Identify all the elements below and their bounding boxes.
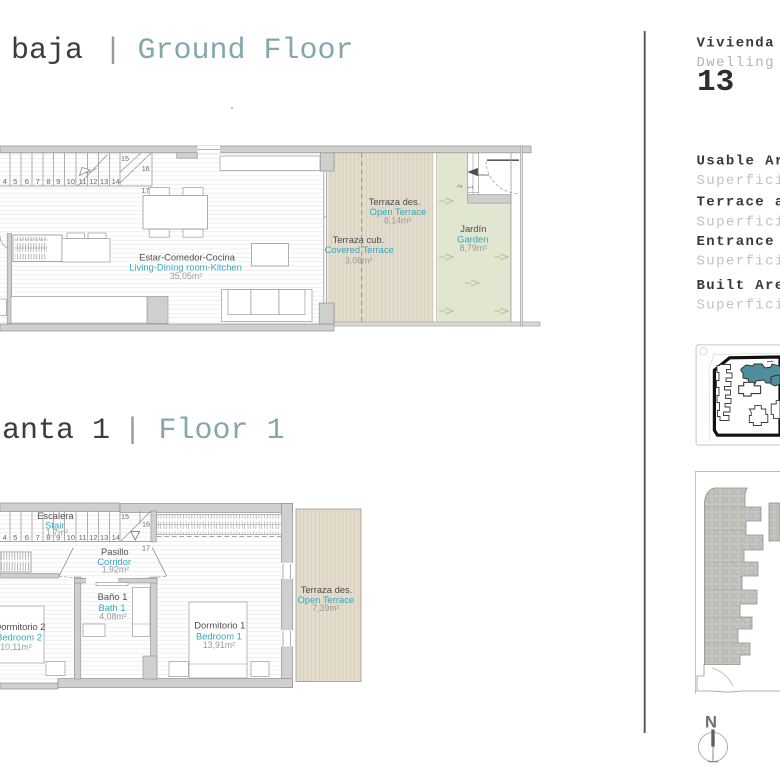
svg-text:Covered Terrace: Covered Terrace [325,244,394,255]
svg-text:11: 11 [79,533,87,542]
svg-text:17: 17 [142,186,150,195]
svg-text:Dormitorio 2: Dormitorio 2 [0,621,46,632]
svg-text:9: 9 [56,177,60,186]
svg-text:anta 1: anta 1 [2,414,110,448]
svg-text:12: 12 [89,177,97,186]
svg-text:10: 10 [67,177,75,186]
svg-text:Superficie terraza: Superficie terraza [697,215,780,231]
svg-text:2: 2 [457,184,464,188]
svg-text:N: N [705,714,717,732]
svg-text:Ground Floor: Ground Floor [138,34,354,68]
svg-text:7: 7 [36,533,40,542]
svg-text:6: 6 [25,177,29,186]
svg-text:Terrace area: Terrace area [697,195,780,211]
svg-text:8,14m²: 8,14m² [384,215,411,225]
svg-text:16: 16 [142,164,150,173]
svg-text:16: 16 [142,520,150,529]
svg-text:7,39m²: 7,39m² [312,603,339,613]
svg-text:|: | [124,414,142,448]
svg-text:35,05m²: 35,05m² [170,271,202,281]
svg-text:5: 5 [13,533,17,542]
svg-text:4,08m²: 4,08m² [99,611,126,621]
svg-text:15: 15 [121,512,129,521]
svg-text:Floor 1: Floor 1 [159,414,285,448]
svg-text:7: 7 [36,177,40,186]
svg-text:Superficie útil: Superficie útil [697,173,780,189]
svg-text:5: 5 [13,177,17,186]
svg-text:Terraza cub.: Terraza cub. [333,234,385,245]
svg-text:13,91m²: 13,91m² [203,640,235,650]
svg-text:baja: baja [11,34,83,68]
svg-text:6: 6 [25,533,29,542]
svg-text:Superficie construida: Superficie construida [697,298,780,314]
svg-text:Dormitorio 1: Dormitorio 1 [194,619,245,630]
svg-text:14: 14 [112,533,120,542]
svg-text:3,08m²: 3,08m² [345,255,372,265]
svg-text:Entrance: Entrance [697,234,775,250]
svg-text:1: 1 [468,185,475,189]
svg-text:Bedroom 2: Bedroom 2 [0,631,42,642]
svg-text:Usable Area: Usable Area [697,154,780,170]
svg-text:13: 13 [697,65,734,100]
svg-text:15: 15 [121,154,129,163]
svg-text:Baño 1: Baño 1 [98,591,128,602]
svg-text:1,92m²: 1,92m² [102,564,129,574]
svg-text:8: 8 [46,177,50,186]
svg-text:8,79m²: 8,79m² [460,243,487,253]
svg-text:12: 12 [89,533,97,542]
svg-text:Jardín: Jardín [460,223,486,234]
svg-text:1,7m²: 1,7m² [46,528,69,538]
svg-text:13: 13 [100,177,108,186]
svg-text:Superficie acceso: Superficie acceso [697,254,780,270]
svg-text:Built Area: Built Area [697,278,780,294]
svg-text:17: 17 [142,544,150,553]
svg-text:14: 14 [112,177,120,186]
svg-text:4: 4 [3,533,7,542]
svg-text:Vivienda: Vivienda [697,36,775,52]
svg-text:10,11m²: 10,11m² [0,642,32,652]
svg-text:13: 13 [100,533,108,542]
svg-text:|: | [104,34,122,68]
svg-text:4: 4 [3,177,7,186]
